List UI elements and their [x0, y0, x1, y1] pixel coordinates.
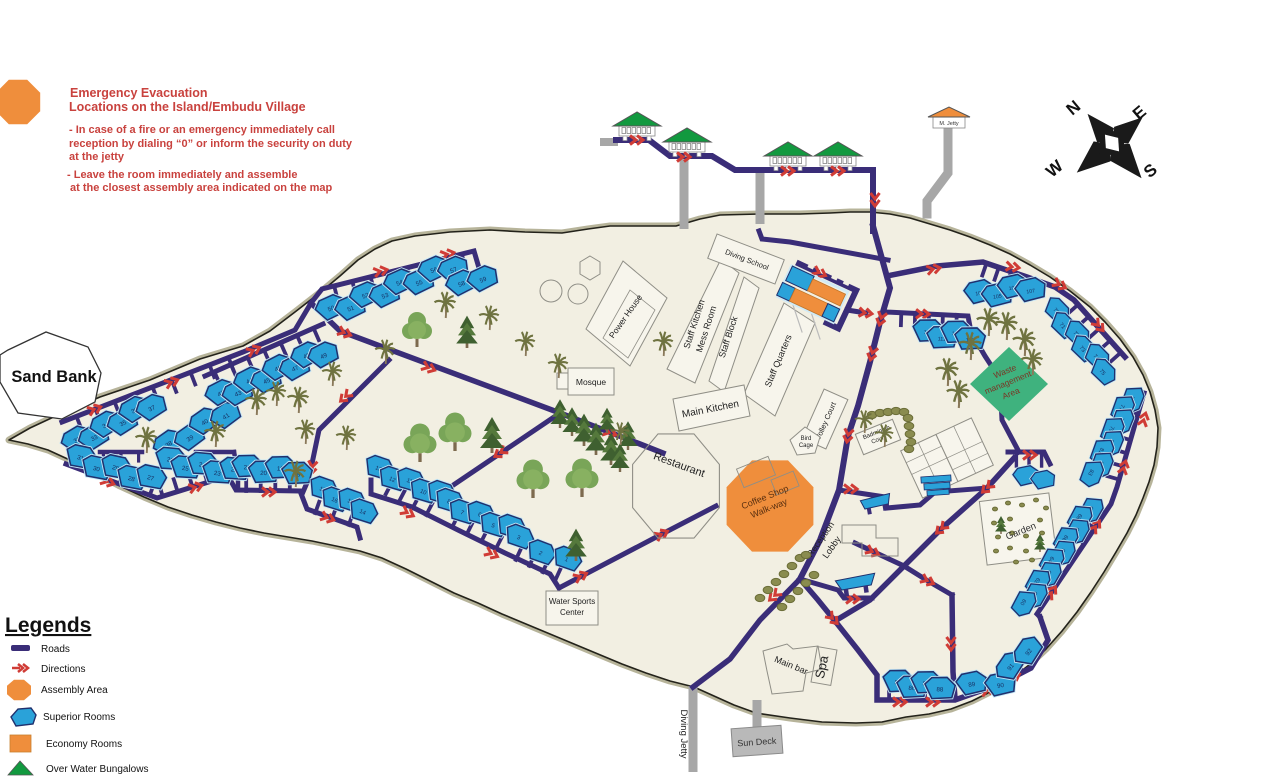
svg-text:20: 20	[260, 470, 268, 477]
svg-text:Bird: Bird	[801, 436, 812, 442]
svg-text:Water Sports: Water Sports	[549, 597, 595, 606]
svg-text:Emergency Evacuation: Emergency Evacuation	[70, 86, 208, 100]
svg-text:Cage: Cage	[799, 443, 814, 449]
svg-text:- In case of a fire or an emer: - In case of a fire or an emergency imme…	[69, 124, 335, 136]
svg-text:- Leave the room immediately a: - Leave the room immediately and assembl…	[67, 169, 297, 181]
svg-text:Over Water Bungalows: Over Water Bungalows	[46, 764, 148, 775]
svg-text:Roads: Roads	[41, 644, 70, 655]
svg-text:Directions: Directions	[41, 664, 85, 675]
svg-text:Locations on the Island/Embudu: Locations on the Island/Embudu Village	[69, 100, 306, 114]
svg-text:Legends: Legends	[5, 614, 91, 637]
svg-text:Sand Bank: Sand Bank	[11, 368, 97, 386]
svg-text:Center: Center	[560, 608, 584, 617]
svg-text:88: 88	[936, 686, 944, 693]
svg-text:at the jetty: at the jetty	[69, 151, 125, 163]
svg-text:at the closest assembly area i: at the closest assembly area indicated o…	[70, 182, 333, 194]
svg-text:Economy Rooms: Economy Rooms	[46, 739, 122, 750]
svg-text:Diving Jetty: Diving Jetty	[678, 709, 689, 758]
svg-text:reception by dialing “0” or in: reception by dialing “0” or inform the s…	[69, 138, 353, 150]
svg-text:Mosque: Mosque	[576, 377, 607, 387]
svg-text:Assembly Area: Assembly Area	[41, 685, 108, 696]
svg-text:M. Jetty: M. Jetty	[939, 121, 959, 127]
svg-text:Superior Rooms: Superior Rooms	[43, 712, 115, 723]
